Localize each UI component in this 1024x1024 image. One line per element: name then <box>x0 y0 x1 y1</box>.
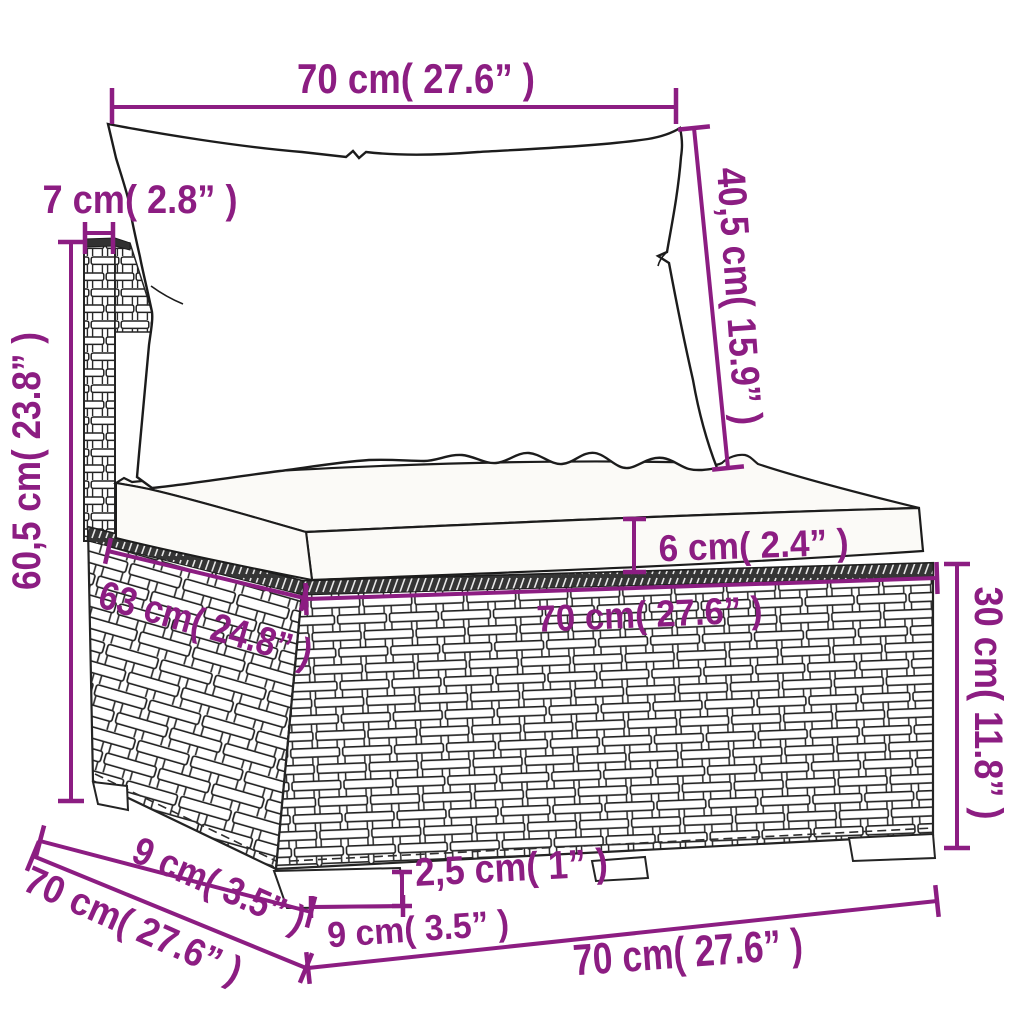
svg-text:60,5 cm( 23.8” ): 60,5 cm( 23.8” ) <box>5 332 49 590</box>
svg-text:70 cm( 27.6” ): 70 cm( 27.6” ) <box>297 55 535 102</box>
svg-text:6 cm( 2.4” ): 6 cm( 2.4” ) <box>658 521 849 570</box>
svg-text:30 cm( 11.8” ): 30 cm( 11.8” ) <box>966 587 1010 820</box>
svg-text:7 cm( 2.8” ): 7 cm( 2.8” ) <box>43 178 238 222</box>
